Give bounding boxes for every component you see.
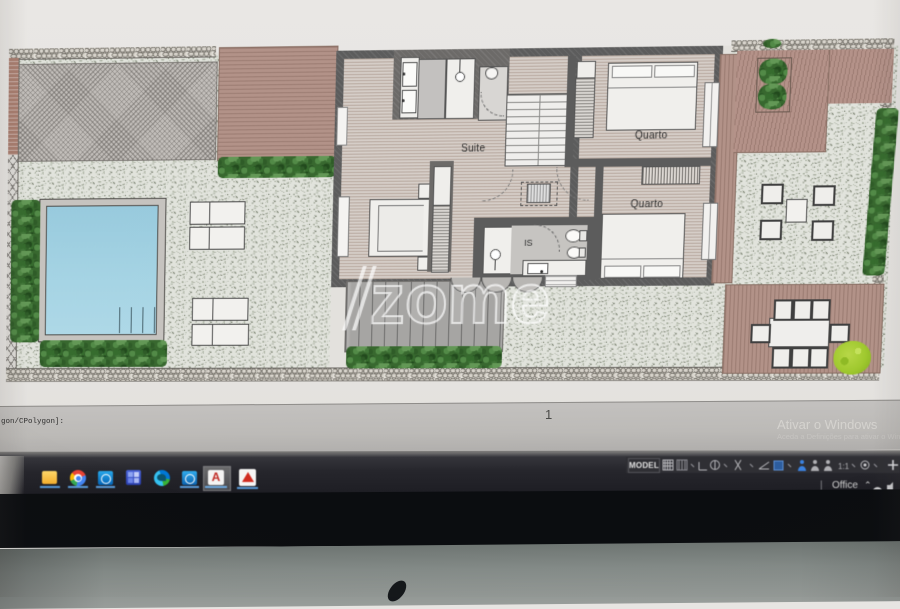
svg-text:1:1: 1:1: [838, 462, 850, 471]
